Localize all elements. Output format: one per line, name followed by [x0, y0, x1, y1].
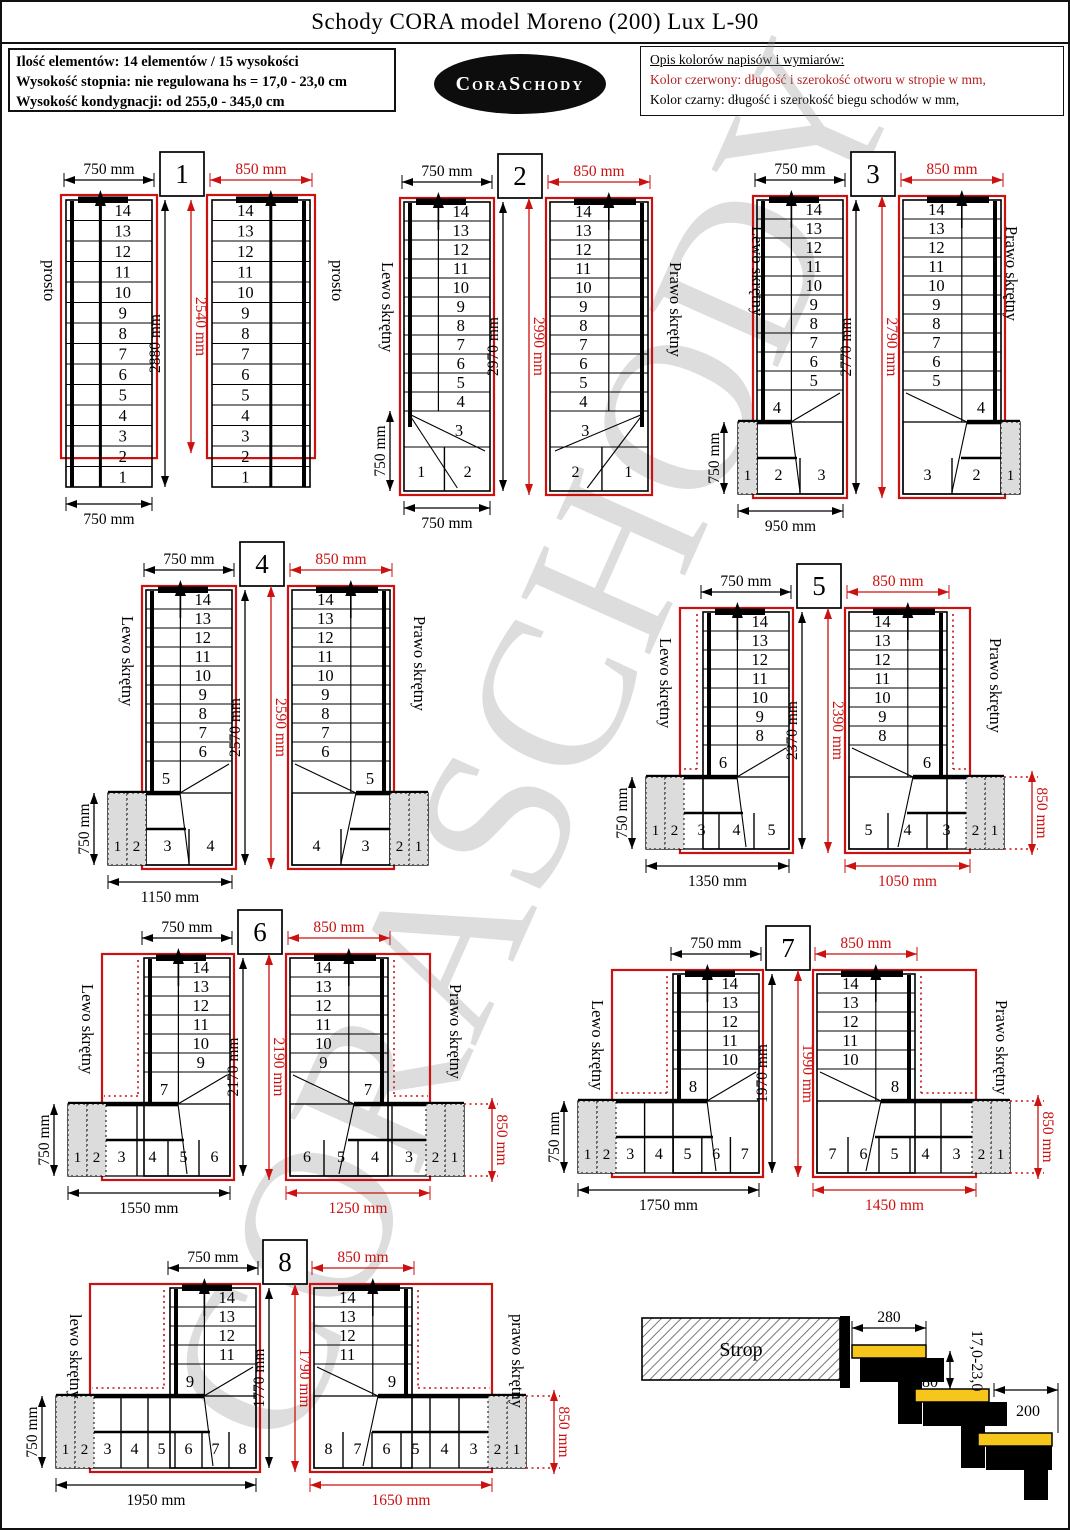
variant-2-svg: 1413121110987654312141312111098765431227…: [364, 152, 694, 543]
winder-line: [587, 414, 643, 488]
step-number: 12: [193, 996, 210, 1015]
step-number: 3: [626, 1146, 634, 1163]
arrowhead: [265, 1288, 273, 1299]
step-number: 11: [928, 257, 944, 276]
step-number: 3: [118, 1149, 126, 1166]
step-number: 9: [241, 303, 249, 322]
step-number: 10: [195, 666, 212, 685]
arrowhead: [959, 862, 970, 870]
winder-line: [791, 393, 840, 422]
section-detail-diagram: Strop2808017,0-23,0200: [620, 1290, 1070, 1522]
step-number: 9: [810, 295, 818, 314]
arrowhead: [187, 442, 195, 453]
winder-line: [204, 1367, 253, 1396]
info-box: Ilość elementów: 14 elementów / 15 wysok…: [8, 48, 396, 112]
stair-direction-label: Lewo skrętny: [656, 638, 675, 729]
stair-flight-outline: [292, 590, 390, 865]
step-number: 3: [455, 421, 463, 440]
step-number: 3: [362, 838, 370, 855]
arrowhead: [915, 1324, 926, 1332]
step-number: 8: [325, 1441, 333, 1458]
step-number: 4: [655, 1146, 663, 1163]
step-number: 4: [773, 398, 781, 417]
step-number: 5: [768, 822, 776, 839]
step-number: 6: [810, 352, 818, 371]
dimension-label: 850 mm: [315, 551, 366, 568]
step-number: 11: [315, 1015, 331, 1034]
arrowhead: [852, 483, 860, 494]
variant-4-svg: 1413121110987653412141312111098765431247…: [72, 540, 462, 907]
arrowhead: [144, 566, 155, 574]
arrowhead: [901, 176, 912, 184]
arrowhead: [479, 504, 490, 512]
arrowhead: [720, 422, 728, 433]
step-number: 6: [457, 354, 465, 373]
step-number: 7: [829, 1146, 837, 1163]
arrowhead: [780, 588, 791, 596]
step-number: 7: [364, 1080, 372, 1099]
stair-flight-outline: [817, 974, 915, 1173]
step-number: 2: [241, 447, 249, 466]
arrowhead: [64, 176, 75, 184]
dimension-label: 950 mm: [765, 518, 816, 535]
dimension-label: 2970 mm: [485, 317, 502, 376]
step-number: 13: [722, 993, 739, 1012]
step-number: 1: [513, 1442, 521, 1458]
arrowhead: [210, 176, 221, 184]
step-number: 13: [237, 221, 254, 240]
step-number: 5: [412, 1441, 420, 1458]
step-number: 1: [584, 1147, 592, 1163]
dimension-label: 750 mm: [83, 161, 134, 178]
step-number: 2: [671, 823, 679, 839]
step-number: 11: [339, 1345, 355, 1364]
step-number: 3: [818, 467, 826, 484]
arrowhead: [768, 974, 776, 985]
step-number: 2: [464, 464, 472, 481]
variant-3-diagram: 1413121110987654231141312111098765432137…: [702, 150, 1060, 542]
stair-direction-label: Lewo skrętny: [748, 226, 767, 317]
step-number: 6: [719, 753, 727, 772]
dimension-label: 750 mm: [161, 919, 212, 936]
step-number: 4: [119, 406, 127, 425]
dimension-label: 80: [922, 1374, 938, 1391]
step-number: 10: [806, 276, 823, 295]
stair-plan-right: 14131211987654312: [310, 1278, 526, 1472]
step-number: 10: [317, 666, 334, 685]
step-number: 6: [932, 352, 940, 371]
step-number: 3: [924, 467, 932, 484]
step-number: 9: [186, 1372, 194, 1391]
arrowhead: [219, 1189, 230, 1197]
dimension-label: 750 mm: [706, 432, 723, 483]
opening-outline-red: [207, 195, 315, 458]
dimension-label: 750 mm: [24, 1406, 41, 1457]
step-number: 10: [842, 1050, 859, 1069]
dimension-label: 2370 mm: [784, 701, 801, 760]
arrowhead: [404, 504, 415, 512]
dimension-label: 850 mm: [1033, 787, 1048, 838]
step-number: 3: [104, 1441, 112, 1458]
step-number: 1: [62, 1442, 70, 1458]
step-number: 13: [195, 609, 212, 628]
stair-direction-label: prosto: [40, 260, 59, 301]
step-number: 13: [453, 221, 470, 240]
arrowhead: [108, 878, 119, 886]
step-number: 5: [810, 371, 818, 390]
step-support-bar: [986, 1446, 1052, 1470]
arrowhead: [265, 954, 273, 965]
arrowhead: [50, 1104, 58, 1115]
step-number: 9: [388, 1372, 396, 1391]
step-number: 9: [199, 685, 207, 704]
stair-direction-label: Prawo skrętny: [986, 638, 1005, 734]
opening-outline-red: [61, 195, 157, 458]
arrowhead: [286, 1189, 297, 1197]
variant-number: 3: [866, 159, 880, 189]
arrowhead: [247, 1264, 258, 1272]
step-number: 11: [317, 647, 333, 666]
arrowhead: [738, 507, 749, 515]
arrowhead: [646, 862, 657, 870]
dimension-label: 1250 mm: [329, 1200, 388, 1217]
stair-plan-right: 141312111098654312: [845, 602, 1004, 853]
step-number: 11: [193, 1015, 209, 1034]
step-number: 3: [164, 838, 172, 855]
step-number: 13: [219, 1307, 236, 1326]
dimension-label: 1650 mm: [372, 1492, 431, 1509]
variant-number: 1: [175, 159, 189, 189]
arrowhead: [66, 500, 77, 508]
dimension-label: 2540 mm: [192, 297, 209, 356]
step-number: 12: [219, 1326, 236, 1345]
stair-flight-outline: [903, 200, 1001, 494]
step-number: 10: [315, 1034, 332, 1053]
step-number: 6: [321, 742, 329, 761]
arrowhead: [291, 1461, 299, 1472]
dimension-label: 850 mm: [493, 1114, 508, 1165]
step-number: 12: [752, 650, 769, 669]
arrowhead: [628, 838, 636, 849]
arrowhead: [379, 934, 390, 942]
step-number: 11: [575, 259, 591, 278]
winder-line: [180, 764, 229, 793]
step-number: 2: [396, 839, 404, 855]
arrowhead: [481, 178, 492, 186]
arrowhead: [878, 196, 886, 207]
arrowhead: [161, 476, 169, 487]
variant-1-svg: 1413121110987654321141312111098765432117…: [26, 150, 350, 545]
winder-line: [555, 414, 643, 451]
stair-flight-outline: [673, 974, 759, 1173]
arrowhead: [768, 1162, 776, 1173]
stair-plan-left: 14131211934567812: [56, 1278, 260, 1472]
step-number: 13: [115, 221, 132, 240]
arrowhead: [241, 590, 249, 601]
winder-line: [178, 1075, 227, 1104]
arrowhead: [301, 176, 312, 184]
dimension-label: 2990 mm: [530, 317, 547, 376]
variant-number: 6: [253, 917, 267, 947]
step-number: 12: [195, 628, 212, 647]
step-number: 7: [160, 1080, 168, 1099]
step-number: 1: [241, 467, 249, 486]
dimension-label: 850 mm: [1039, 1111, 1054, 1162]
step-number: 4: [313, 838, 321, 855]
stair-plan-right: 141312111087654312: [813, 964, 1010, 1177]
step-number: 5: [180, 1149, 188, 1166]
step-number: 11: [115, 262, 131, 281]
step-number: 11: [219, 1345, 235, 1364]
dimension-label: 850 mm: [573, 163, 624, 180]
step-number: 4: [207, 838, 215, 855]
info-line-step-height: Wysokość stopnia: nie regulowana hs = 17…: [16, 72, 388, 92]
stair-direction-label: Lewo skrętny: [378, 262, 397, 353]
step-number: 2: [81, 1442, 89, 1458]
step-number: 10: [193, 1034, 210, 1053]
arrowhead: [824, 842, 832, 853]
step-number: 8: [241, 324, 249, 343]
dimension-label: 2170 mm: [225, 1038, 242, 1097]
step-number: 8: [891, 1077, 899, 1096]
stair-direction-label: Prawo skrętny: [666, 262, 685, 358]
stair-direction-label: Prawo skrętny: [446, 984, 465, 1080]
opening-outline-red: [546, 198, 652, 495]
arrowhead: [720, 483, 728, 494]
dimension-label: 1450 mm: [865, 1197, 924, 1214]
arrowhead: [578, 1186, 589, 1194]
step-number: 4: [922, 1146, 930, 1163]
arrowhead: [312, 1264, 323, 1272]
step-number: 8: [689, 1077, 697, 1096]
step-number: 5: [119, 385, 127, 404]
section-detail-svg: Strop2808017,0-23,0200: [620, 1290, 1070, 1522]
winder-line: [707, 1072, 756, 1101]
arrowhead: [290, 566, 301, 574]
dimension-label: 750 mm: [76, 803, 93, 854]
dimension-label: 280: [877, 1309, 901, 1326]
step-number: 1: [624, 464, 632, 481]
dimension-label: 2770 mm: [838, 318, 855, 377]
arrowhead: [798, 612, 806, 623]
step-number: 5: [162, 769, 170, 788]
info-line-elements: Ilość elementów: 14 elementów / 15 wysok…: [16, 52, 388, 72]
variant-7-svg: 1413121110834567121413121110876543127750…: [542, 924, 1054, 1244]
step-number: 5: [684, 1146, 692, 1163]
step-number: 9: [119, 303, 127, 322]
step-number: 5: [891, 1146, 899, 1163]
arrowhead: [241, 854, 249, 865]
step-number: 8: [457, 316, 465, 335]
stair-plan-right: 1413121110987654312: [546, 192, 652, 495]
step-number: 2: [972, 823, 980, 839]
step-number: 4: [904, 822, 912, 839]
step-number: 10: [115, 283, 132, 302]
step-number: 11: [874, 669, 890, 688]
arrowhead: [794, 1166, 802, 1177]
step-number: 3: [405, 1149, 413, 1166]
step-number: 12: [339, 1326, 356, 1345]
step-number: 7: [199, 723, 207, 742]
step-number: 10: [928, 276, 945, 295]
step-number: 6: [383, 1441, 391, 1458]
arrowhead: [223, 566, 234, 574]
dimension-label: 1790 mm: [296, 1349, 313, 1408]
step-number: 1: [652, 823, 660, 839]
arrowhead: [548, 178, 559, 186]
dimension-label: 750 mm: [720, 573, 771, 590]
dimension-label: 750 mm: [372, 425, 389, 476]
drawing-page: Schody CORA model Moreno (200) Lux L-90 …: [0, 0, 1070, 1530]
info-line-storey-height: Wysokość kondygnacji: od 255,0 - 345,0 c…: [16, 92, 388, 112]
winder-line: [737, 748, 786, 777]
stair-direction-label: Lewo skrętny: [78, 984, 97, 1075]
arrowhead: [403, 1264, 414, 1272]
step-number: 2: [494, 1442, 502, 1458]
step-number: 3: [943, 822, 951, 839]
arrowhead: [141, 500, 152, 508]
legend-black-line: Kolor czarny: długość i szerokość biegu …: [650, 90, 1054, 110]
dimension-label: 1990 mm: [799, 1044, 816, 1103]
dimension-label: 2390 mm: [829, 701, 846, 760]
arrowhead: [288, 934, 299, 942]
title-bar: Schody CORA model Moreno (200) Lux L-90: [2, 2, 1068, 44]
opening-outline-red: [400, 198, 494, 495]
stair-direction-label: Prawo skrętny: [1002, 226, 1021, 322]
arrowhead: [239, 958, 247, 969]
stair-flight-outline: [146, 590, 232, 865]
step-number: 2: [603, 1147, 611, 1163]
step-number: 1: [114, 839, 122, 855]
step-number: 2: [119, 447, 127, 466]
step-number: 2: [571, 464, 579, 481]
step-number: 8: [878, 726, 886, 745]
color-legend-box: Opis kolorów napisów i wymiarów: Kolor c…: [640, 46, 1064, 116]
stair-plan-right: 1413121110987654321: [207, 190, 315, 487]
step-number: 6: [712, 1146, 720, 1163]
step-number: 10: [575, 278, 592, 297]
step-number: 11: [237, 262, 253, 281]
step-number: 9: [579, 297, 587, 316]
step-number: 14: [237, 201, 254, 220]
variant-6-svg: 1413121110973456121413121110976543126750…: [32, 908, 508, 1247]
step-number: 4: [441, 1441, 449, 1458]
dimension-label: 2590 mm: [272, 698, 289, 757]
step-number: 6: [185, 1441, 193, 1458]
step-number: 8: [321, 704, 329, 723]
arrowhead: [499, 480, 507, 491]
step-number: 13: [317, 609, 334, 628]
dimension-label: 750 mm: [187, 1249, 238, 1266]
step-number: 7: [579, 335, 587, 354]
dimension-label: 850 mm: [926, 161, 977, 178]
step-number: 4: [977, 398, 985, 417]
arrowhead: [221, 878, 232, 886]
step-number: 13: [339, 1307, 356, 1326]
step-number: 13: [928, 219, 945, 238]
step-number: 7: [457, 335, 465, 354]
arrowhead: [847, 588, 858, 596]
step-number: 3: [698, 822, 706, 839]
step-number: 1: [997, 1147, 1005, 1163]
dimension-label: 750 mm: [83, 511, 134, 528]
step-number: 8: [579, 316, 587, 335]
slab-edge-trim: [840, 1316, 850, 1388]
variant-1-diagram: 1413121110987654321141312111098765432117…: [26, 150, 350, 545]
step-number: 9: [321, 685, 329, 704]
step-number: 6: [579, 354, 587, 373]
step-number: 4: [579, 392, 587, 411]
arrowhead: [525, 484, 533, 495]
stair-direction-label: Prawo skrętny: [410, 616, 429, 712]
arrowhead: [50, 1165, 58, 1176]
stair-plan-right: 141312111097654312: [286, 948, 464, 1180]
step-number: 13: [752, 631, 769, 650]
variant-number: 8: [278, 1247, 292, 1277]
arrowhead: [628, 777, 636, 788]
step-number: 14: [115, 201, 132, 220]
dimension-label: 850 mm: [337, 1249, 388, 1266]
step-number: 7: [810, 333, 818, 352]
stair-plan-right: 1413121110987654321: [899, 190, 1020, 498]
step-number: 11: [195, 647, 211, 666]
dimension-label: 1350 mm: [688, 873, 747, 890]
stair-direction-label: Prawo skrętny: [992, 1000, 1011, 1096]
dimension-label: 750 mm: [421, 515, 472, 532]
step-number: 10: [722, 1050, 739, 1069]
winder-line: [820, 1072, 881, 1101]
arrowhead: [381, 566, 392, 574]
dimension-label: 17,0-23,0: [968, 1330, 985, 1391]
stair-plan-left: 1413121110987654312: [400, 192, 494, 495]
step-number: 3: [119, 426, 127, 445]
dimension-label: 1950 mm: [127, 1492, 186, 1509]
variant-number: 4: [255, 549, 269, 579]
dimension-label: 1550 mm: [120, 1200, 179, 1217]
arrowhead: [291, 1284, 299, 1295]
step-number: 7: [741, 1146, 749, 1163]
step-number: 13: [575, 221, 592, 240]
step-number: 3: [953, 1146, 961, 1163]
variant-8-svg: 14131211934567812141312119876543128750 m…: [20, 1238, 570, 1528]
step-number: 7: [932, 333, 940, 352]
step-number: 6: [241, 365, 249, 384]
arrowhead: [560, 1101, 568, 1112]
arrowhead: [143, 176, 154, 184]
step-support-bar: [923, 1402, 1007, 1426]
arrowhead: [267, 858, 275, 869]
arrowhead: [813, 1186, 824, 1194]
step-number: 6: [303, 1149, 311, 1166]
step-number: 5: [158, 1441, 166, 1458]
arrowhead: [824, 608, 832, 619]
winder-line: [295, 764, 356, 793]
arrowhead: [386, 411, 394, 422]
arrowhead: [402, 178, 413, 186]
dimension-label: 1970 mm: [754, 1044, 771, 1103]
step-number: 6: [860, 1146, 868, 1163]
step-number: 10: [874, 688, 891, 707]
arrowhead: [90, 793, 98, 804]
strop-label: Strop: [719, 1339, 762, 1361]
dimension-label: 850 mm: [235, 161, 286, 178]
step-number: 9: [197, 1053, 205, 1072]
step-number: 4: [733, 822, 741, 839]
variant-3-svg: 1413121110987654231141312111098765432137…: [702, 150, 1060, 542]
step-number: 6: [923, 753, 931, 772]
stair-direction-label: Lewo skrętny: [588, 1000, 607, 1091]
step-number: 8: [119, 324, 127, 343]
